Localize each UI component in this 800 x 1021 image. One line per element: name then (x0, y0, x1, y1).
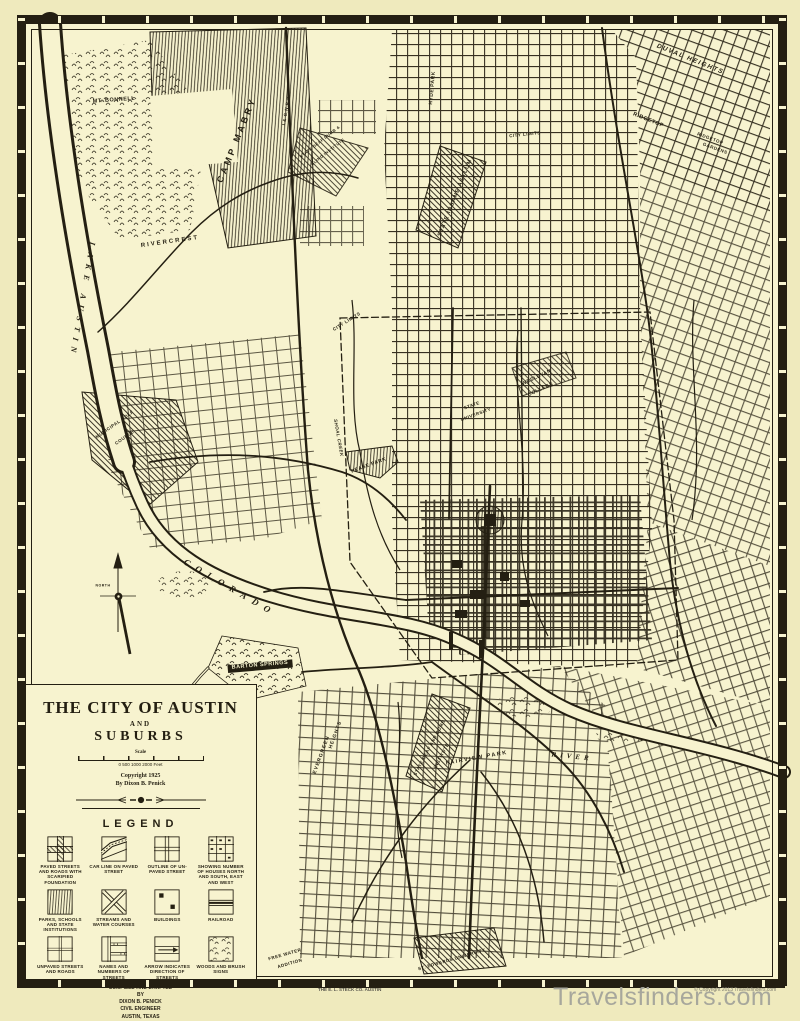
credits-line: AUSTIN, TEXAS (25, 1014, 256, 1021)
legend-heading: LEGEND (25, 818, 256, 830)
street-direction-symbol (154, 936, 180, 962)
page: { "page": { "paper_color": "#f7f3cf", "m… (0, 0, 800, 1012)
legend-item: WOODS AND BRUSH SIGNS (196, 936, 247, 980)
border-left (17, 15, 26, 986)
legend-item: PAVED STREETS AND ROADS WITH SCARIFIED F… (35, 836, 86, 885)
scale-label: Scale (25, 750, 256, 755)
unpaved-roads-symbol (47, 936, 73, 962)
legend-item: UNPAVED STREETS AND ROADS (35, 936, 86, 980)
credits-block: COMPILED AND DRAFTED BY DIXON B. PENICK … (25, 985, 256, 1021)
streams-symbol (101, 889, 127, 915)
legend-item: CAR LINE ON PAVED STREET (89, 836, 140, 885)
car-line-symbol (101, 836, 127, 862)
map-subtitle: SUBURBS (25, 729, 256, 745)
legend-item: OUTLINE OF UN-PAVED STREET (142, 836, 193, 885)
printer-mark: THE E. L. STECK CO. AUSTIN (318, 987, 381, 992)
divider-ornament (76, 795, 206, 805)
parks-symbol (47, 889, 73, 915)
legend-item: SHOWING NUMBER OF HOUSES NORTH AND SOUTH… (196, 836, 247, 885)
scale-bar (78, 756, 204, 761)
border-top (17, 15, 785, 24)
credits-line: DIXON B. PENICK (25, 999, 256, 1006)
map-title-and: AND (25, 720, 256, 728)
legend-item: PARKS, SCHOOLS AND STATE INSTITUTIONS (35, 889, 86, 933)
unpaved-outline-symbol (154, 836, 180, 862)
border-right (778, 15, 787, 986)
map-title: THE CITY OF AUSTIN (25, 698, 256, 718)
title-legend-panel: THE CITY OF AUSTIN AND SUBURBS Scale 0 5… (25, 684, 257, 980)
scale-numbers: 0 500 1000 2000 Feet (25, 762, 256, 767)
house-numbers-symbol (208, 836, 234, 862)
legend-grid: PAVED STREETS AND ROADS WITH SCARIFIED F… (25, 830, 256, 980)
watermark: Travelsfinders.com (553, 983, 772, 1012)
credits-line: BY (25, 992, 256, 999)
credits-line: CIVIL ENGINEER (25, 1006, 256, 1013)
byline: By Dixon B. Penick (25, 781, 256, 787)
buildings-symbol (154, 889, 180, 915)
paved-streets-symbol (47, 836, 73, 862)
legend-item: NAMES AND NUMBERS OF STREETS (89, 936, 140, 980)
woods-symbol (208, 936, 234, 962)
divider-line (82, 808, 200, 809)
legend-item: RAILROAD (196, 889, 247, 933)
legend-item: ARROW INDICATES DIRECTION OF STREETS (142, 936, 193, 980)
legend-item: BUILDINGS (142, 889, 193, 933)
legend-item: STREAMS AND WATER COURSES (89, 889, 140, 933)
railroad-symbol (208, 889, 234, 915)
street-names-symbol (101, 936, 127, 962)
compass-rose (100, 554, 136, 654)
copyright-line: Copyright 1925 (25, 773, 256, 779)
